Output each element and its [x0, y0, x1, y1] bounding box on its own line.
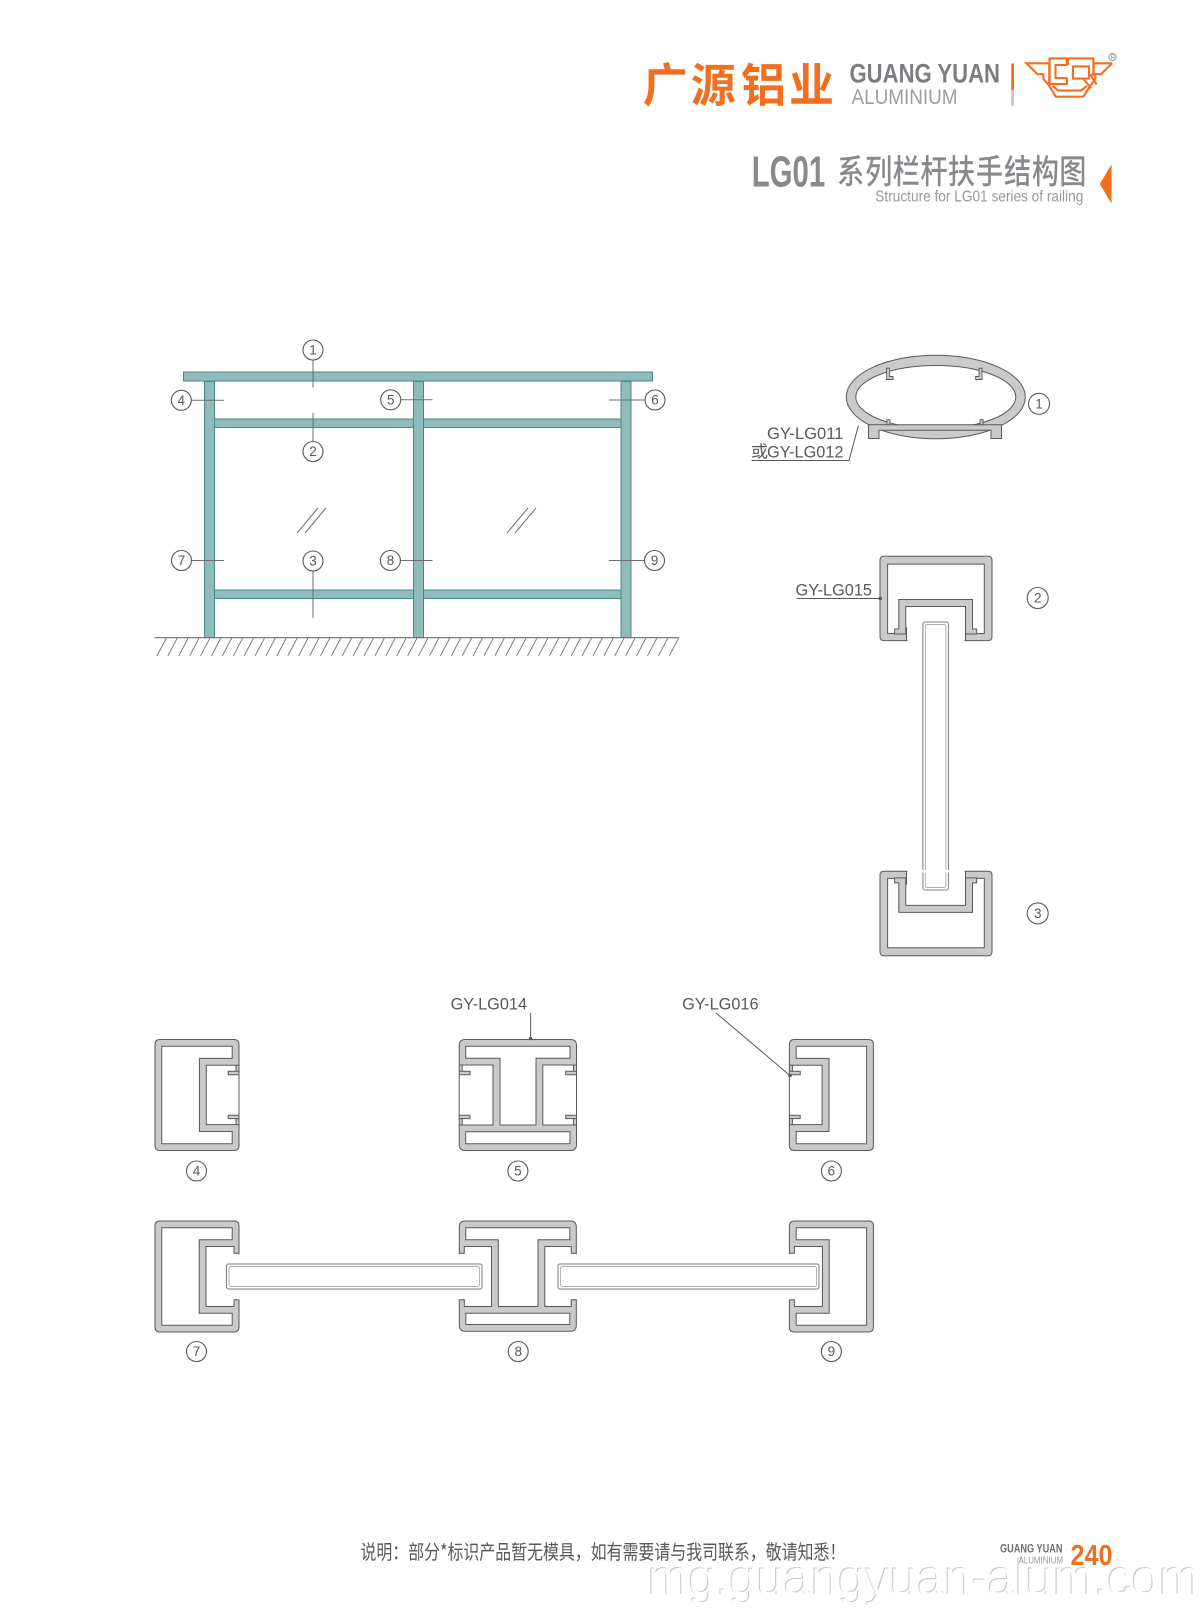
svg-text:LG01: LG01 — [752, 148, 826, 197]
svg-text:8: 8 — [514, 1344, 522, 1359]
svg-text:240: 240 — [1071, 1540, 1113, 1572]
svg-text:GY-LG016: GY-LG016 — [682, 995, 759, 1014]
svg-text:3: 3 — [1034, 906, 1042, 921]
svg-text:4: 4 — [178, 393, 186, 408]
svg-text:GY-LG015: GY-LG015 — [796, 580, 873, 599]
svg-text:Structure for LG01 series of r: Structure for LG01 series of railing — [875, 189, 1083, 206]
svg-text:7: 7 — [193, 1344, 201, 1359]
svg-text:GUANG YUAN: GUANG YUAN — [1000, 1544, 1063, 1556]
svg-text:9: 9 — [651, 553, 659, 568]
svg-text:2: 2 — [1034, 591, 1042, 606]
svg-text:5: 5 — [387, 392, 395, 407]
svg-text:GY-LG014: GY-LG014 — [451, 995, 527, 1014]
svg-text:R: R — [1110, 55, 1115, 62]
svg-text:1: 1 — [1035, 397, 1043, 412]
svg-text:GUANG YUAN: GUANG YUAN — [850, 59, 1001, 89]
svg-text:ALUMINIUM: ALUMINIUM — [1019, 1556, 1064, 1567]
svg-text:6: 6 — [828, 1164, 836, 1179]
svg-text:1: 1 — [309, 343, 317, 358]
svg-text:ALUMINIUM: ALUMINIUM — [852, 85, 958, 109]
svg-text:2: 2 — [309, 444, 317, 459]
svg-text:8: 8 — [387, 553, 395, 568]
svg-text:3: 3 — [309, 554, 317, 569]
svg-text:5: 5 — [514, 1164, 522, 1179]
svg-text:GY-LG012: GY-LG012 — [767, 443, 844, 462]
svg-text:6: 6 — [651, 393, 659, 408]
svg-text:7: 7 — [178, 553, 186, 568]
svg-text:9: 9 — [828, 1344, 836, 1359]
svg-text:GY-LG011: GY-LG011 — [767, 424, 844, 443]
svg-text:4: 4 — [193, 1164, 201, 1179]
